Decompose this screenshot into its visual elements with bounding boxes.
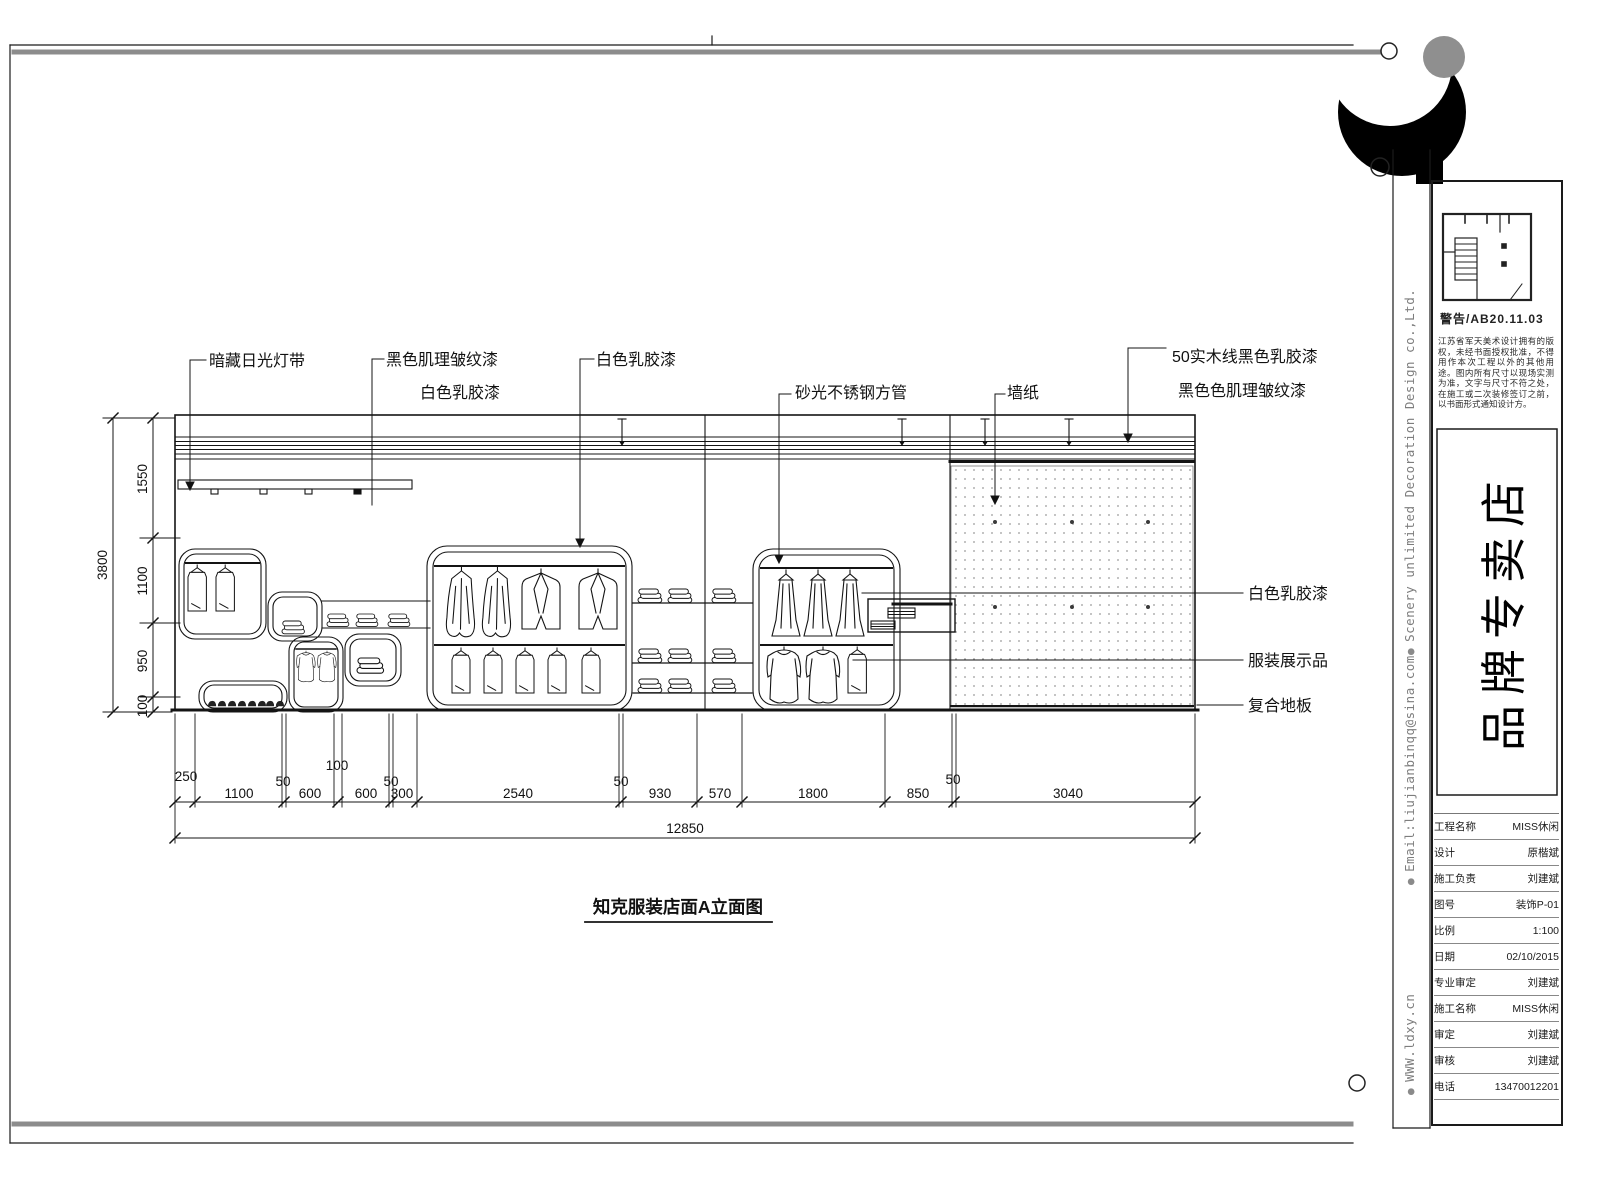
table-row: 电话13470012201 <box>1434 1074 1559 1100</box>
row-value: 刘建斌 <box>1528 1027 1560 1042</box>
display-box-d <box>289 637 343 712</box>
row-label: 图号 <box>1434 897 1455 912</box>
table-row: 审定刘建斌 <box>1434 1022 1559 1048</box>
callout-black-texture-paint-2: 黑色色肌理皱纹漆 <box>1178 382 1306 400</box>
callout-hidden-light: 暗藏日光灯带 <box>209 352 305 370</box>
row-value: 1:100 <box>1533 925 1559 937</box>
display-box-b <box>268 592 322 641</box>
callout-white-latex-1: 白色乳胶漆 <box>596 351 676 369</box>
table-row: 工程名称MISS休闲 <box>1434 814 1559 840</box>
row-value: MISS休闲 <box>1512 1001 1559 1016</box>
callout-floor: 复合地板 <box>1248 697 1312 715</box>
bullet-icon: ● <box>1404 648 1417 655</box>
dim-850: 850 <box>907 786 930 801</box>
row-label: 审核 <box>1434 1053 1455 1068</box>
dim-50a: 50 <box>275 774 290 789</box>
callout-wallpaper: 墙纸 <box>1007 384 1039 402</box>
row-label: 日期 <box>1434 949 1455 964</box>
table-row: 施工负责刘建斌 <box>1434 866 1559 892</box>
dim-50c: 50 <box>613 774 628 789</box>
row-label: 专业审定 <box>1434 975 1476 990</box>
callout-black-texture-paint: 黑色肌理皱纹漆 <box>386 351 498 369</box>
row-label: 工程名称 <box>1434 819 1476 834</box>
callout-steel-tube: 砂光不锈钢方管 <box>795 384 907 402</box>
logo-small-circle-bottom <box>1349 1075 1365 1091</box>
elevation-drawing: 暗藏日光灯带 黑色肌理皱纹漆 白色乳胶漆 白色乳胶漆 砂光不锈钢方管 墙纸 50… <box>0 0 1600 1200</box>
dim-100v: 100 <box>135 695 150 718</box>
dim-600b: 600 <box>355 786 378 801</box>
strip-company: ●Scenery unlimited Decoration Design co.… <box>1402 185 1417 655</box>
dim-570: 570 <box>709 786 732 801</box>
row-value: 02/10/2015 <box>1506 951 1559 963</box>
strip-email: ●Email:liujianbinqq@sina.com <box>1402 655 1417 885</box>
floorplan-thumbnail <box>1443 214 1531 300</box>
row-label: 施工负责 <box>1434 871 1476 886</box>
folded-shelves <box>633 589 752 693</box>
shoe-cabinet <box>199 681 287 712</box>
rule-end-circle <box>1381 43 1397 59</box>
company-name: Scenery unlimited Decoration Design co.,… <box>1402 289 1417 642</box>
table-row: 日期02/10/2015 <box>1434 944 1559 970</box>
titleblock-table: 工程名称MISS休闲 设计原楷斌 施工负责刘建斌 图号装饰P-01 比例1:10… <box>1434 813 1559 1100</box>
mid-shelf <box>322 601 430 628</box>
callout-wood-line: 50实木线黑色乳胶漆 <box>1172 348 1318 366</box>
callout-display-items: 服装展示品 <box>1248 652 1328 670</box>
left-dimension-texts: 3800 1550 1100 950 100 <box>95 464 150 717</box>
row-label: 设计 <box>1434 845 1455 860</box>
row-label: 施工名称 <box>1434 1001 1476 1016</box>
dim-12850: 12850 <box>666 821 704 836</box>
row-value: 装饰P-01 <box>1516 897 1559 912</box>
counter-unit <box>868 599 955 632</box>
display-box-e <box>345 634 401 686</box>
bullet-icon: ● <box>1404 878 1417 885</box>
dim-3040: 3040 <box>1053 786 1083 801</box>
cad-sheet: 暗藏日光灯带 黑色肌理皱纹漆 白色乳胶漆 白色乳胶漆 砂光不锈钢方管 墙纸 50… <box>0 0 1600 1200</box>
drawing-title: 知克服装店面A立面图 <box>593 897 763 917</box>
row-value: 原楷斌 <box>1528 845 1560 860</box>
dim-1100v: 1100 <box>135 566 150 595</box>
center-rack <box>427 546 632 711</box>
dim-3800: 3800 <box>95 550 110 580</box>
row-value: MISS休闲 <box>1512 819 1559 834</box>
dim-930: 930 <box>649 786 672 801</box>
row-label: 审定 <box>1434 1027 1455 1042</box>
dim-2540: 2540 <box>503 786 533 801</box>
brand-title: 品牌专卖店 <box>1468 431 1534 791</box>
titleblock-disclaimer: 江苏省军天美术设计拥有的版权，未经书面授权批准，不得用作本次工程以外的其他用途。… <box>1438 336 1554 410</box>
bottom-dimension-texts: 250 1100 50 600 100 600 50 300 2540 50 9… <box>175 758 1083 836</box>
dim-50d: 50 <box>945 772 960 787</box>
logo-gray-circle <box>1423 36 1465 78</box>
dim-1550: 1550 <box>135 464 150 494</box>
table-row: 审核刘建斌 <box>1434 1048 1559 1074</box>
callout-white-latex-2: 白色乳胶漆 <box>420 384 500 402</box>
strip-website: ●WWW.ldxy.cn <box>1402 950 1417 1095</box>
company-website: WWW.ldxy.cn <box>1402 994 1417 1082</box>
row-value: 13470012201 <box>1495 1081 1559 1093</box>
wallpaper-area <box>951 466 1193 707</box>
titleblock-stamp: 警告/AB20.11.03 <box>1440 310 1558 327</box>
row-label: 电话 <box>1434 1079 1455 1094</box>
table-row: 图号装饰P-01 <box>1434 892 1559 918</box>
dim-1100: 1100 <box>224 786 253 801</box>
row-value: 刘建斌 <box>1528 871 1560 886</box>
row-value: 刘建斌 <box>1528 975 1560 990</box>
dim-100: 100 <box>326 758 349 773</box>
store-elevation <box>172 415 1198 712</box>
ceiling-band <box>176 437 1194 462</box>
display-box-a <box>179 549 266 639</box>
high-shelf <box>178 480 412 494</box>
table-row: 比例1:100 <box>1434 918 1559 944</box>
callout-white-latex-right: 白色乳胶漆 <box>1248 585 1328 603</box>
table-row: 设计原楷斌 <box>1434 840 1559 866</box>
dim-600a: 600 <box>299 786 322 801</box>
company-email: Email:liujianbinqq@sina.com <box>1402 655 1417 872</box>
right-rack <box>753 549 900 711</box>
bullet-icon: ● <box>1404 1088 1417 1095</box>
dim-1800: 1800 <box>798 786 828 801</box>
row-value: 刘建斌 <box>1528 1053 1560 1068</box>
dim-950: 950 <box>135 650 150 673</box>
table-row: 专业审定刘建斌 <box>1434 970 1559 996</box>
table-row: 施工名称MISS休闲 <box>1434 996 1559 1022</box>
dim-250: 250 <box>175 769 198 784</box>
dim-300: 300 <box>391 786 414 801</box>
row-label: 比例 <box>1434 923 1455 938</box>
